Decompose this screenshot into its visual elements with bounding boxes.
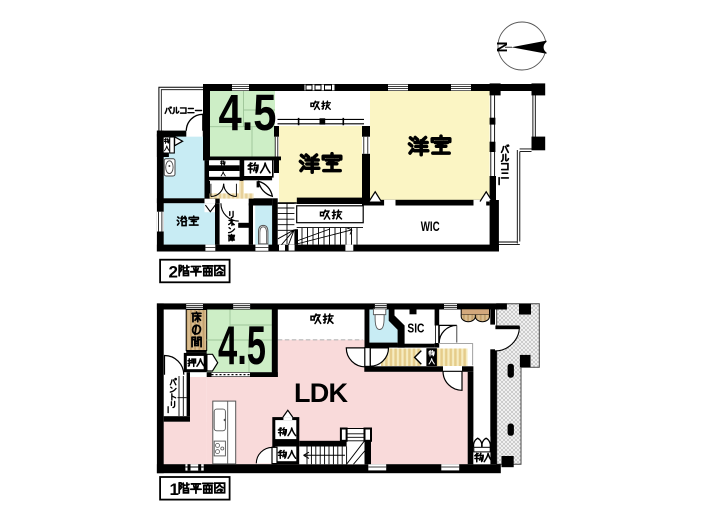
svg-text:4.5: 4.5 xyxy=(218,314,266,376)
svg-text:4.5: 4.5 xyxy=(219,84,277,141)
svg-text:WIC: WIC xyxy=(421,219,440,234)
svg-text:SIC: SIC xyxy=(407,321,424,336)
svg-text:2: 2 xyxy=(169,263,178,282)
svg-text:LDK: LDK xyxy=(294,378,349,408)
svg-text:N: N xyxy=(494,42,511,53)
svg-text:1: 1 xyxy=(170,480,179,499)
